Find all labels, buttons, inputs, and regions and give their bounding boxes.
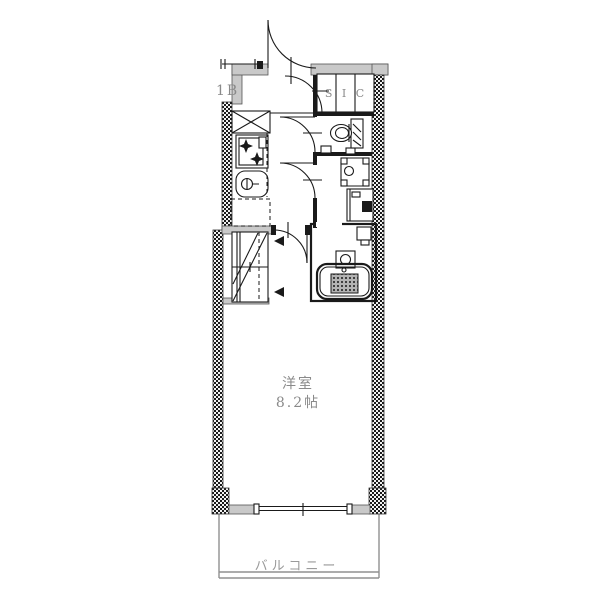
washbasin: [341, 158, 369, 186]
toilet-door-arc: [280, 117, 315, 152]
balcony-label: バルコニー: [255, 559, 340, 574]
room-door-arc: [274, 230, 307, 263]
wall-right: [372, 75, 384, 490]
room-size-label: 8.2帖: [276, 395, 320, 411]
column-bottom-left: [212, 488, 229, 514]
closet: [232, 232, 284, 302]
balcony: バルコニー: [219, 514, 379, 578]
wall-right-cap: [372, 64, 388, 75]
wall-sic-bottom: [317, 112, 374, 116]
room-name-label: 洋室: [282, 375, 314, 392]
floor-plan-page: バルコニー: [0, 0, 600, 600]
kitchen: [231, 111, 270, 226]
unit-label: 1B: [216, 83, 239, 99]
kitchen-sink: [236, 171, 268, 197]
pipe-space: [232, 111, 270, 133]
kitchen-stove: [236, 135, 268, 168]
bathtub: [317, 264, 372, 299]
toilet: [331, 119, 364, 148]
bathroom: [311, 222, 376, 301]
closet-door-mark-top: [274, 236, 284, 246]
floor-plan-svg: バルコニー: [0, 0, 600, 600]
bath-drain: [336, 251, 355, 268]
wall-hall-1: [313, 75, 317, 117]
paper-holder: [321, 146, 331, 153]
entrance-door-arc: [268, 20, 316, 68]
wall-node-top: [257, 61, 263, 69]
wall-remote: [346, 148, 355, 154]
washing-machine: [347, 189, 373, 221]
wall-left-lower: [213, 230, 223, 490]
column-bottom-right: [369, 488, 386, 514]
refrigerator-space: [231, 199, 270, 226]
shoe-in-closet: S I C: [317, 74, 374, 112]
bathroom-door-opening: [316, 222, 342, 227]
sic-label: S I C: [325, 87, 367, 100]
closet-door-mark-bottom: [274, 287, 284, 297]
bath-counter: [357, 227, 371, 245]
balcony-window: [254, 503, 352, 516]
